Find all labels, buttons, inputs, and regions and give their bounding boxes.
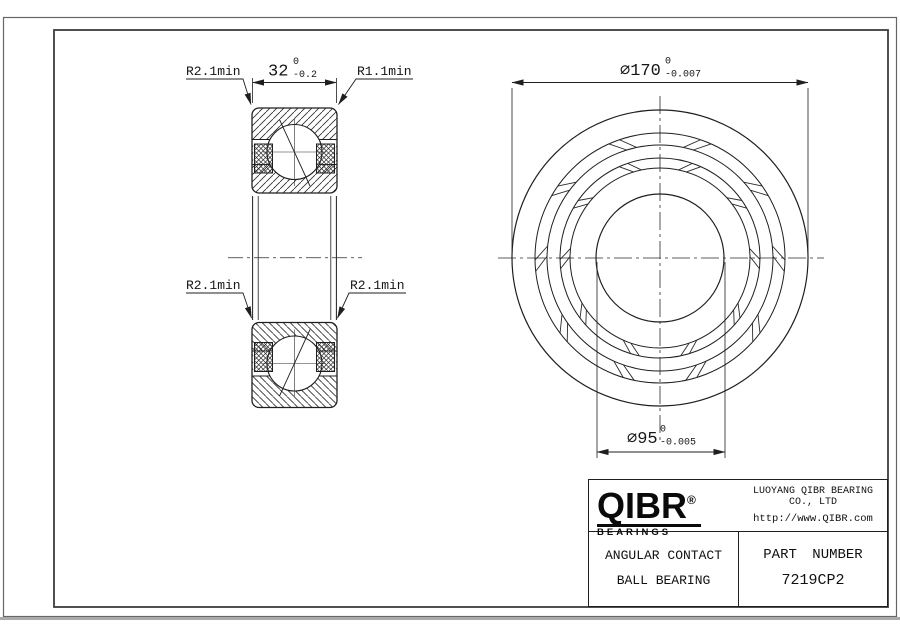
product-line2: BALL BEARING (589, 568, 738, 593)
part-number-value: 7219CP2 (739, 568, 887, 594)
cross-section-view: 32 0 -0.2 R2.1min R1.1min R2.1min R2.1mi… (186, 57, 413, 408)
fillet-label-top-left: R2.1min (186, 64, 241, 79)
title-block: QIBR® BEARINGS LUOYANG QIBR BEARING CO.,… (588, 479, 888, 607)
product-description-cell: ANGULAR CONTACT BALL BEARING (589, 532, 739, 606)
company-info: LUOYANG QIBR BEARING CO., LTD http://www… (739, 480, 887, 531)
bearing-section-mirrored (252, 323, 337, 408)
fillet-label-mid-left: R2.1min (186, 278, 241, 293)
cage-section-right (317, 144, 335, 173)
width-dim-tol-upper: 0 (293, 57, 299, 68)
cage-section-left (255, 144, 273, 173)
front-view: ∅170 0 -0.007 ∅95 0 -0.005 (498, 57, 824, 459)
logo-text: QIBR (597, 485, 687, 526)
bore-dim-value: ∅95 (627, 430, 658, 449)
title-block-content: ANGULAR CONTACT BALL BEARING PART NUMBER… (589, 532, 887, 606)
fillet-label-top-right: R1.1min (357, 64, 412, 79)
company-website: http://www.QIBR.com (739, 513, 887, 525)
qibr-logo: QIBR® BEARINGS (589, 480, 739, 531)
width-dim-value: 32 (268, 63, 288, 82)
od-dim-tol-lower: -0.007 (665, 70, 701, 81)
part-number-cell: PART NUMBER 7219CP2 (739, 532, 887, 606)
bore-dim-tol-lower: -0.005 (660, 438, 696, 449)
bore-dim-tol-upper: 0 (660, 425, 666, 436)
od-dim-value: ∅170 (620, 62, 661, 81)
fillet-label-mid-right: R2.1min (350, 278, 405, 293)
dimension-width-32: 32 0 -0.2 (253, 57, 337, 103)
part-number-label: PART NUMBER (739, 542, 887, 568)
title-block-header: QIBR® BEARINGS LUOYANG QIBR BEARING CO.,… (589, 480, 887, 532)
width-dim-tol-lower: -0.2 (293, 70, 317, 81)
drawing-page: 32 0 -0.2 R2.1min R1.1min R2.1min R2.1mi… (0, 0, 900, 636)
dimension-bore-95: ∅95 0 -0.005 (597, 262, 725, 458)
product-line1: ANGULAR CONTACT (589, 543, 738, 568)
od-dim-tol-upper: 0 (665, 57, 671, 68)
company-name: LUOYANG QIBR BEARING CO., LTD (739, 486, 887, 508)
registered-trademark-icon: ® (687, 493, 696, 507)
